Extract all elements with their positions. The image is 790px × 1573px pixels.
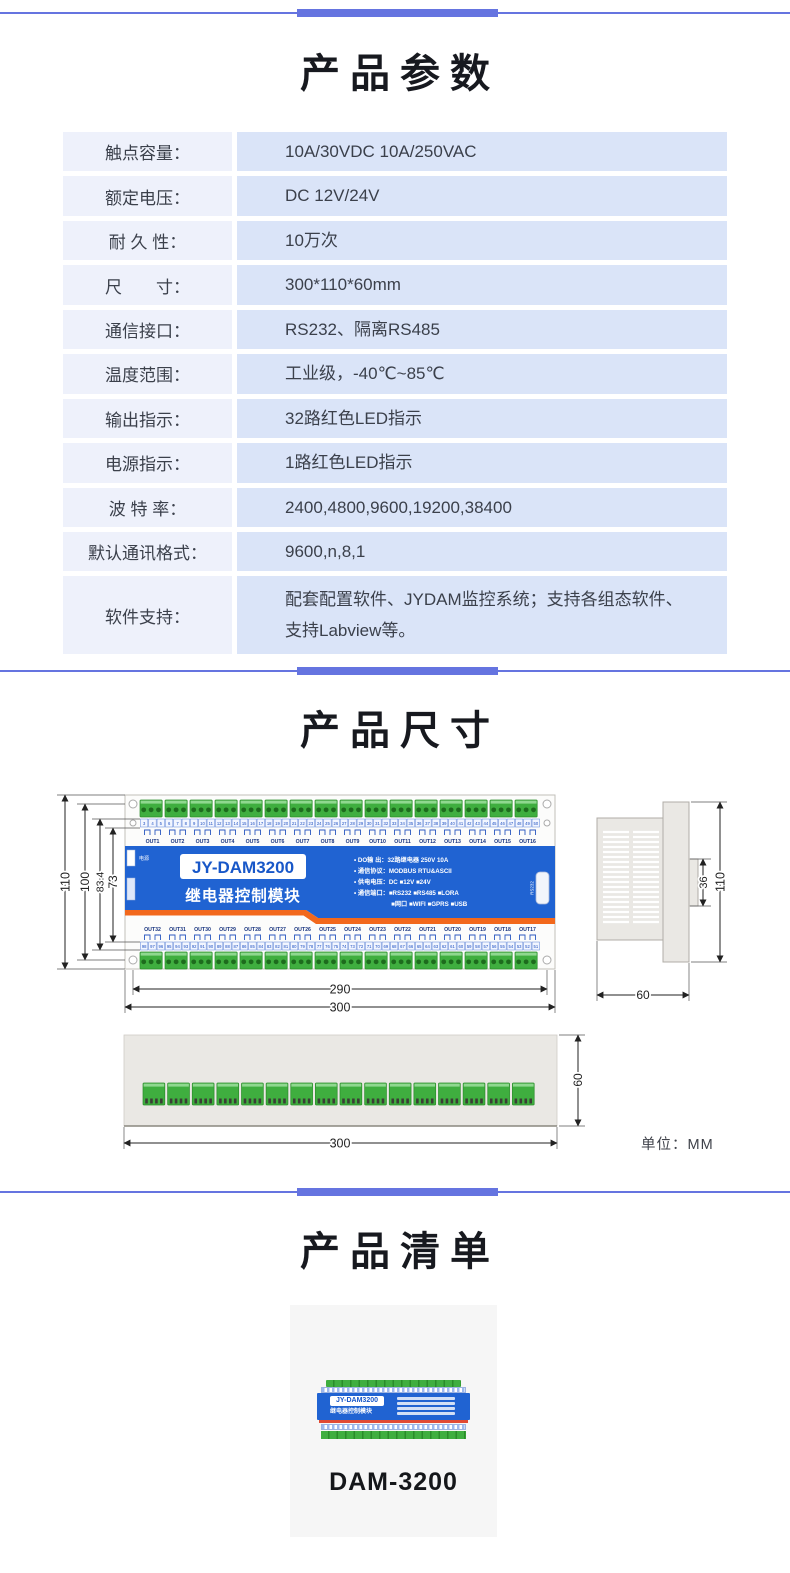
svg-text:OUT24: OUT24 [344,927,361,933]
svg-text:58: 58 [475,944,480,949]
svg-text:57: 57 [483,944,488,949]
param-label: 温度范围： [63,354,232,393]
svg-text:45: 45 [492,821,497,826]
dimensions-section-title: 产品尺寸 [0,709,790,753]
param-row: 电源指示：1路红色LED指示 [63,443,727,482]
thumb-relay-row [321,1424,466,1430]
front-view: 3456789101112131415161718192021222324252… [125,795,555,969]
svg-text:43: 43 [475,821,480,826]
svg-text:OUT21: OUT21 [419,927,436,933]
svg-text:18: 18 [267,821,272,826]
svg-text:OUT28: OUT28 [244,927,261,933]
svg-text:66: 66 [408,944,413,949]
svg-text:290: 290 [330,982,351,996]
svg-text:36: 36 [417,821,422,826]
section-divider-middle [0,670,790,672]
svg-text:88: 88 [225,944,230,949]
thumb-subtitle: 继电器控制模块 [330,1408,390,1417]
svg-text:33: 33 [392,821,397,826]
svg-text:OUT25: OUT25 [319,927,336,933]
svg-text:64: 64 [425,944,430,949]
svg-text:63: 63 [433,944,438,949]
svg-text:OUT11: OUT11 [394,839,411,845]
svg-text:16: 16 [250,821,255,826]
thumb-accent-stripe [319,1420,468,1423]
svg-text:17: 17 [258,821,263,826]
svg-text:35: 35 [408,821,413,826]
svg-text:34: 34 [400,821,405,826]
svg-text:26: 26 [333,821,338,826]
svg-text:22: 22 [300,821,305,826]
param-label: 触点容量： [63,132,232,171]
param-label: 耐 久 性： [63,221,232,260]
section-divider-top [0,12,790,14]
svg-text:OUT23: OUT23 [369,927,386,933]
svg-text:48: 48 [517,821,522,826]
checklist-section-title: 产品清单 [0,1230,790,1274]
svg-text:100: 100 [78,872,92,892]
param-label: 电源指示： [63,443,232,482]
thumb-panel: JY-DAM3200 继电器控制模块 [317,1393,470,1420]
svg-text:10: 10 [200,821,205,826]
svg-text:44: 44 [483,821,488,826]
svg-text:54: 54 [508,944,513,949]
svg-text:OUT7: OUT7 [296,839,310,845]
svg-text:110: 110 [58,872,72,892]
param-value: 32路红色LED指示 [237,399,727,438]
svg-text:80: 80 [292,944,297,949]
svg-text:27: 27 [342,821,347,826]
param-value: 配套配置软件、JYDAM监控系统；支持各组态软件、支持Labview等。 [237,576,727,654]
svg-text:95: 95 [167,944,172,949]
svg-text:OUT13: OUT13 [444,839,461,845]
svg-text:50: 50 [533,821,538,826]
svg-text:OUT9: OUT9 [346,839,360,845]
svg-text:98: 98 [142,944,147,949]
svg-text:25: 25 [325,821,330,826]
svg-text:53: 53 [517,944,522,949]
param-row: 波 特 率：2400,4800,9600,19200,38400 [63,488,727,527]
param-value: 300*110*60mm [237,265,727,304]
svg-text:OUT31: OUT31 [169,927,186,933]
svg-text:81: 81 [283,944,288,949]
param-label: 默认通讯格式： [63,532,232,571]
params-section-title: 产品参数 [0,52,790,96]
svg-text:59: 59 [467,944,472,949]
product-card: JY-DAM3200 继电器控制模块 DAM-3200 [290,1305,497,1537]
param-label: 输出指示： [63,399,232,438]
svg-text:69: 69 [383,944,388,949]
svg-text:36: 36 [698,876,710,888]
svg-text:70: 70 [375,944,380,949]
svg-text:38: 38 [433,821,438,826]
svg-text:300: 300 [330,1136,351,1150]
param-row: 耐 久 性：10万次 [63,221,727,260]
svg-text:73: 73 [106,875,120,889]
product-name: DAM-3200 [290,1468,497,1497]
svg-text:OUT16: OUT16 [519,839,536,845]
svg-text:62: 62 [442,944,447,949]
side-view [597,802,698,962]
svg-text:78: 78 [308,944,313,949]
svg-text:OUT2: OUT2 [171,839,185,845]
svg-text:56: 56 [492,944,497,949]
svg-text:68: 68 [392,944,397,949]
svg-text:91: 91 [200,944,205,949]
svg-text:71: 71 [367,944,372,949]
svg-text:13: 13 [225,821,230,826]
divider-thick-segment [297,1188,498,1196]
param-label: 通信接口： [63,310,232,349]
svg-text:OUT30: OUT30 [194,927,211,933]
section-divider-bottom [0,1191,790,1193]
svg-text:60: 60 [458,944,463,949]
svg-text:• 供电电压：DC ■12V ■24V: • 供电电压：DC ■12V ■24V [354,878,432,886]
divider-thick-segment [297,667,498,675]
svg-text:87: 87 [233,944,238,949]
param-value: 10万次 [237,221,727,260]
svg-text:89: 89 [217,944,222,949]
param-row: 软件支持：配套配置软件、JYDAM监控系统；支持各组态软件、支持Labview等… [63,576,727,654]
svg-text:32: 32 [383,821,388,826]
param-row: 额定电压：DC 12V/24V [63,176,727,215]
param-value: 10A/30VDC 10A/250VAC [237,132,727,171]
svg-text:31: 31 [375,821,380,826]
svg-text:• DO输 出：32路继电器 250V 10A: • DO输 出：32路继电器 250V 10A [354,856,449,864]
svg-text:97: 97 [150,944,155,949]
svg-text:OUT22: OUT22 [394,927,411,933]
svg-text:RS232: RS232 [530,881,535,895]
unit-note: 单位：MM [641,1133,714,1154]
svg-text:60: 60 [571,1073,585,1087]
svg-text:28: 28 [350,821,355,826]
svg-text:OUT32: OUT32 [144,927,161,933]
param-value: 9600,n,8,1 [237,532,727,571]
svg-text:73: 73 [350,944,355,949]
svg-text:OUT27: OUT27 [269,927,286,933]
svg-text:OUT19: OUT19 [469,927,486,933]
svg-text:300: 300 [330,1000,351,1014]
svg-text:■网口 ■WIFI ■GPRS ■USB: ■网口 ■WIFI ■GPRS ■USB [354,900,468,908]
svg-text:79: 79 [300,944,305,949]
param-label: 波 特 率： [63,488,232,527]
svg-text:OUT18: OUT18 [494,927,511,933]
svg-text:82: 82 [275,944,280,949]
thumb-terminal-strip-top [326,1380,461,1387]
svg-text:11: 11 [209,821,214,826]
svg-text:29: 29 [358,821,363,826]
svg-text:OUT1: OUT1 [146,839,160,845]
param-label: 额定电压： [63,176,232,215]
svg-text:OUT12: OUT12 [419,839,436,845]
param-value: 2400,4800,9600,19200,38400 [237,488,727,527]
svg-text:OUT10: OUT10 [369,839,386,845]
param-value: DC 12V/24V [237,176,727,215]
svg-text:30: 30 [367,821,372,826]
svg-text:OUT8: OUT8 [321,839,335,845]
thumb-terminal-strip-bottom [321,1431,466,1439]
svg-text:90: 90 [208,944,213,949]
svg-text:61: 61 [450,944,455,949]
svg-text:65: 65 [417,944,422,949]
svg-text:21: 21 [292,821,297,826]
svg-text:96: 96 [158,944,163,949]
svg-text:• 通信端口：■RS232 ■RS485 ■LORA: • 通信端口：■RS232 ■RS485 ■LORA [354,889,459,897]
svg-text:85: 85 [250,944,255,949]
param-label: 软件支持： [63,576,232,654]
svg-text:OUT5: OUT5 [246,839,260,845]
param-row: 通信接口：RS232、隔离RS485 [63,310,727,349]
svg-text:24: 24 [317,821,322,826]
svg-text:15: 15 [242,821,247,826]
svg-text:86: 86 [242,944,247,949]
svg-text:OUT4: OUT4 [221,839,235,845]
param-value: 工业级，-40℃~85℃ [237,354,727,393]
svg-text:电源: 电源 [139,855,149,862]
svg-text:55: 55 [500,944,505,949]
svg-text:75: 75 [333,944,338,949]
svg-text:47: 47 [508,821,513,826]
svg-text:83.4: 83.4 [95,872,107,893]
svg-text:12: 12 [217,821,222,826]
svg-text:60: 60 [636,988,650,1002]
param-row: 尺 寸：300*110*60mm [63,265,727,304]
svg-text:84: 84 [258,944,263,949]
param-row: 温度范围：工业级，-40℃~85℃ [63,354,727,393]
svg-text:OUT6: OUT6 [271,839,285,845]
svg-text:20: 20 [283,821,288,826]
param-row: 默认通讯格式：9600,n,8,1 [63,532,727,571]
svg-text:继电器控制模块: 继电器控制模块 [185,886,301,905]
thumb-model-label: JY-DAM3200 [330,1396,384,1406]
svg-text:41: 41 [458,821,463,826]
param-row: 触点容量：10A/30VDC 10A/250VAC [63,132,727,171]
svg-text:OUT29: OUT29 [219,927,236,933]
svg-text:93: 93 [183,944,188,949]
svg-text:• 通信协议：MODBUS RTU&ASCII: • 通信协议：MODBUS RTU&ASCII [354,867,452,875]
svg-text:14: 14 [233,821,238,826]
svg-text:72: 72 [358,944,363,949]
param-value: RS232、隔离RS485 [237,310,727,349]
svg-text:OUT17: OUT17 [519,927,536,933]
svg-text:40: 40 [450,821,455,826]
svg-text:110: 110 [713,872,727,892]
svg-text:42: 42 [467,821,472,826]
svg-text:39: 39 [442,821,447,826]
svg-text:52: 52 [525,944,530,949]
param-row: 输出指示：32路红色LED指示 [63,399,727,438]
svg-text:23: 23 [308,821,313,826]
svg-text:67: 67 [400,944,405,949]
svg-text:OUT26: OUT26 [294,927,311,933]
svg-text:OUT15: OUT15 [494,839,511,845]
divider-thick-segment [297,9,498,17]
svg-text:92: 92 [192,944,197,949]
svg-text:37: 37 [425,821,430,826]
svg-text:JY-DAM3200: JY-DAM3200 [192,858,294,877]
product-thumbnail: JY-DAM3200 继电器控制模块 [317,1380,470,1438]
svg-text:49: 49 [525,821,530,826]
param-value: 1路红色LED指示 [237,443,727,482]
svg-text:19: 19 [275,821,280,826]
svg-text:94: 94 [175,944,180,949]
svg-text:OUT20: OUT20 [444,927,461,933]
svg-text:OUT3: OUT3 [196,839,210,845]
product-params-table: 触点容量：10A/30VDC 10A/250VAC额定电压：DC 12V/24V… [63,132,727,659]
param-label: 尺 寸： [63,265,232,304]
svg-text:76: 76 [325,944,330,949]
svg-text:77: 77 [317,944,322,949]
svg-text:51: 51 [533,944,538,949]
svg-text:83: 83 [267,944,272,949]
thumb-spec-lines [397,1397,455,1417]
product-dimensions-drawing: 3456789101112131415161718192021222324252… [0,780,790,1170]
bottom-view [124,1035,557,1126]
svg-text:46: 46 [500,821,505,826]
svg-text:OUT14: OUT14 [469,839,486,845]
svg-text:74: 74 [342,944,347,949]
